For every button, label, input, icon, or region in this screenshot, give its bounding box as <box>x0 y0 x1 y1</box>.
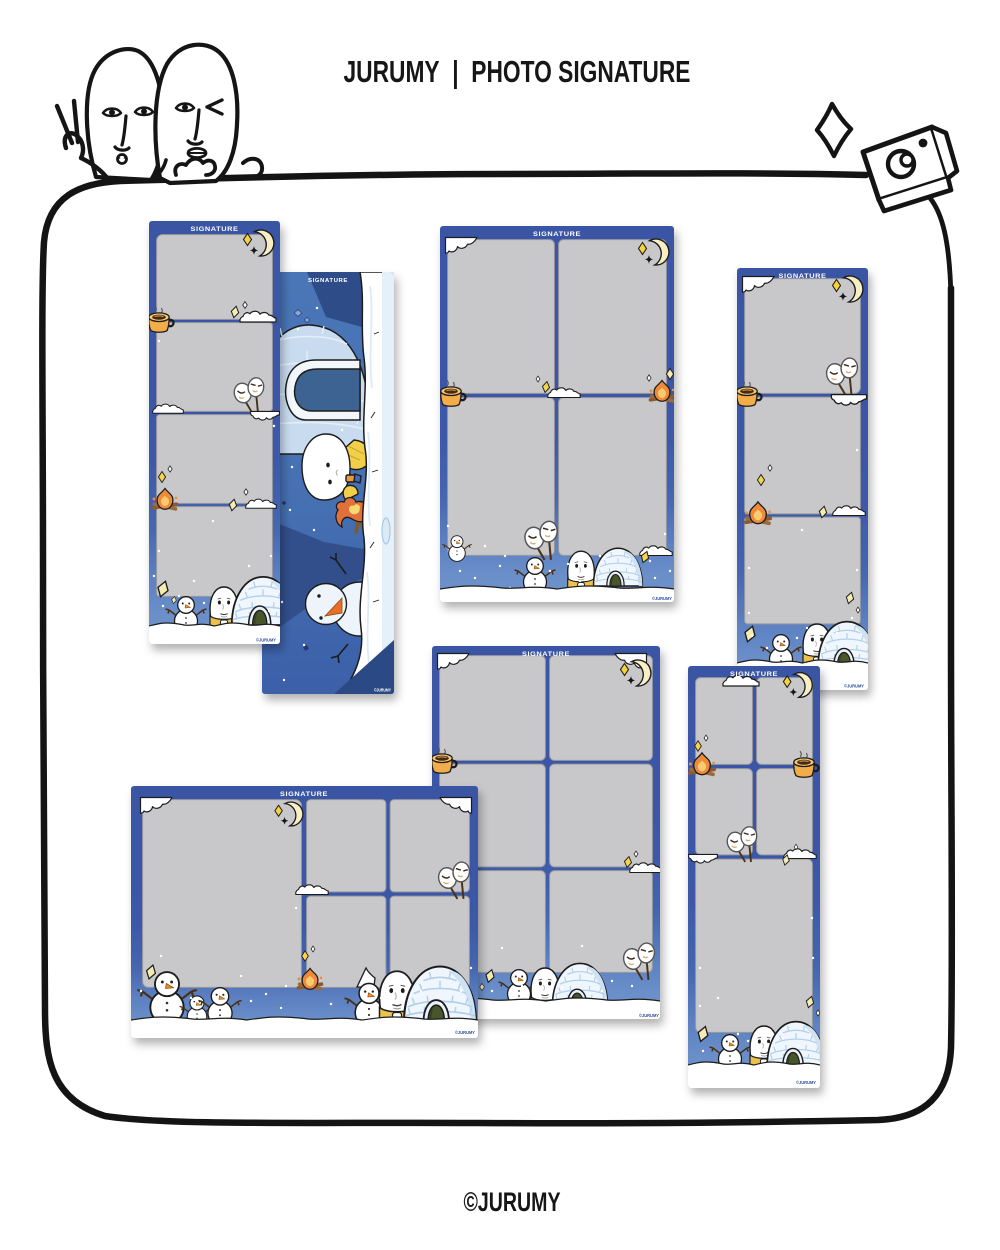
svg-text:©JURUMY: ©JURUMY <box>652 595 673 602</box>
svg-text:©JURUMY: ©JURUMY <box>256 637 277 644</box>
svg-text:SIGNATURE: SIGNATURE <box>779 273 827 280</box>
svg-text:©JURUMY: ©JURUMY <box>455 1029 476 1036</box>
svg-text:SIGNATURE: SIGNATURE <box>522 651 570 658</box>
svg-text:©JURUMY: ©JURUMY <box>796 1079 817 1086</box>
svg-text:SIGNATURE: SIGNATURE <box>730 671 778 678</box>
svg-text:SIGNATURE: SIGNATURE <box>280 791 328 798</box>
svg-text:©JURUMY: ©JURUMY <box>374 688 391 693</box>
svg-text:©JURUMY: ©JURUMY <box>639 1012 660 1019</box>
svg-text:©JURUMY: ©JURUMY <box>464 1187 561 1217</box>
svg-text:SIGNATURE: SIGNATURE <box>308 278 348 284</box>
svg-text:JURUMY | PHOTO SIGNATURE: JURUMY | PHOTO SIGNATURE <box>344 54 691 89</box>
svg-text:SIGNATURE: SIGNATURE <box>533 231 581 238</box>
svg-text:SIGNATURE: SIGNATURE <box>191 226 239 233</box>
svg-text:©JURUMY: ©JURUMY <box>844 683 865 690</box>
